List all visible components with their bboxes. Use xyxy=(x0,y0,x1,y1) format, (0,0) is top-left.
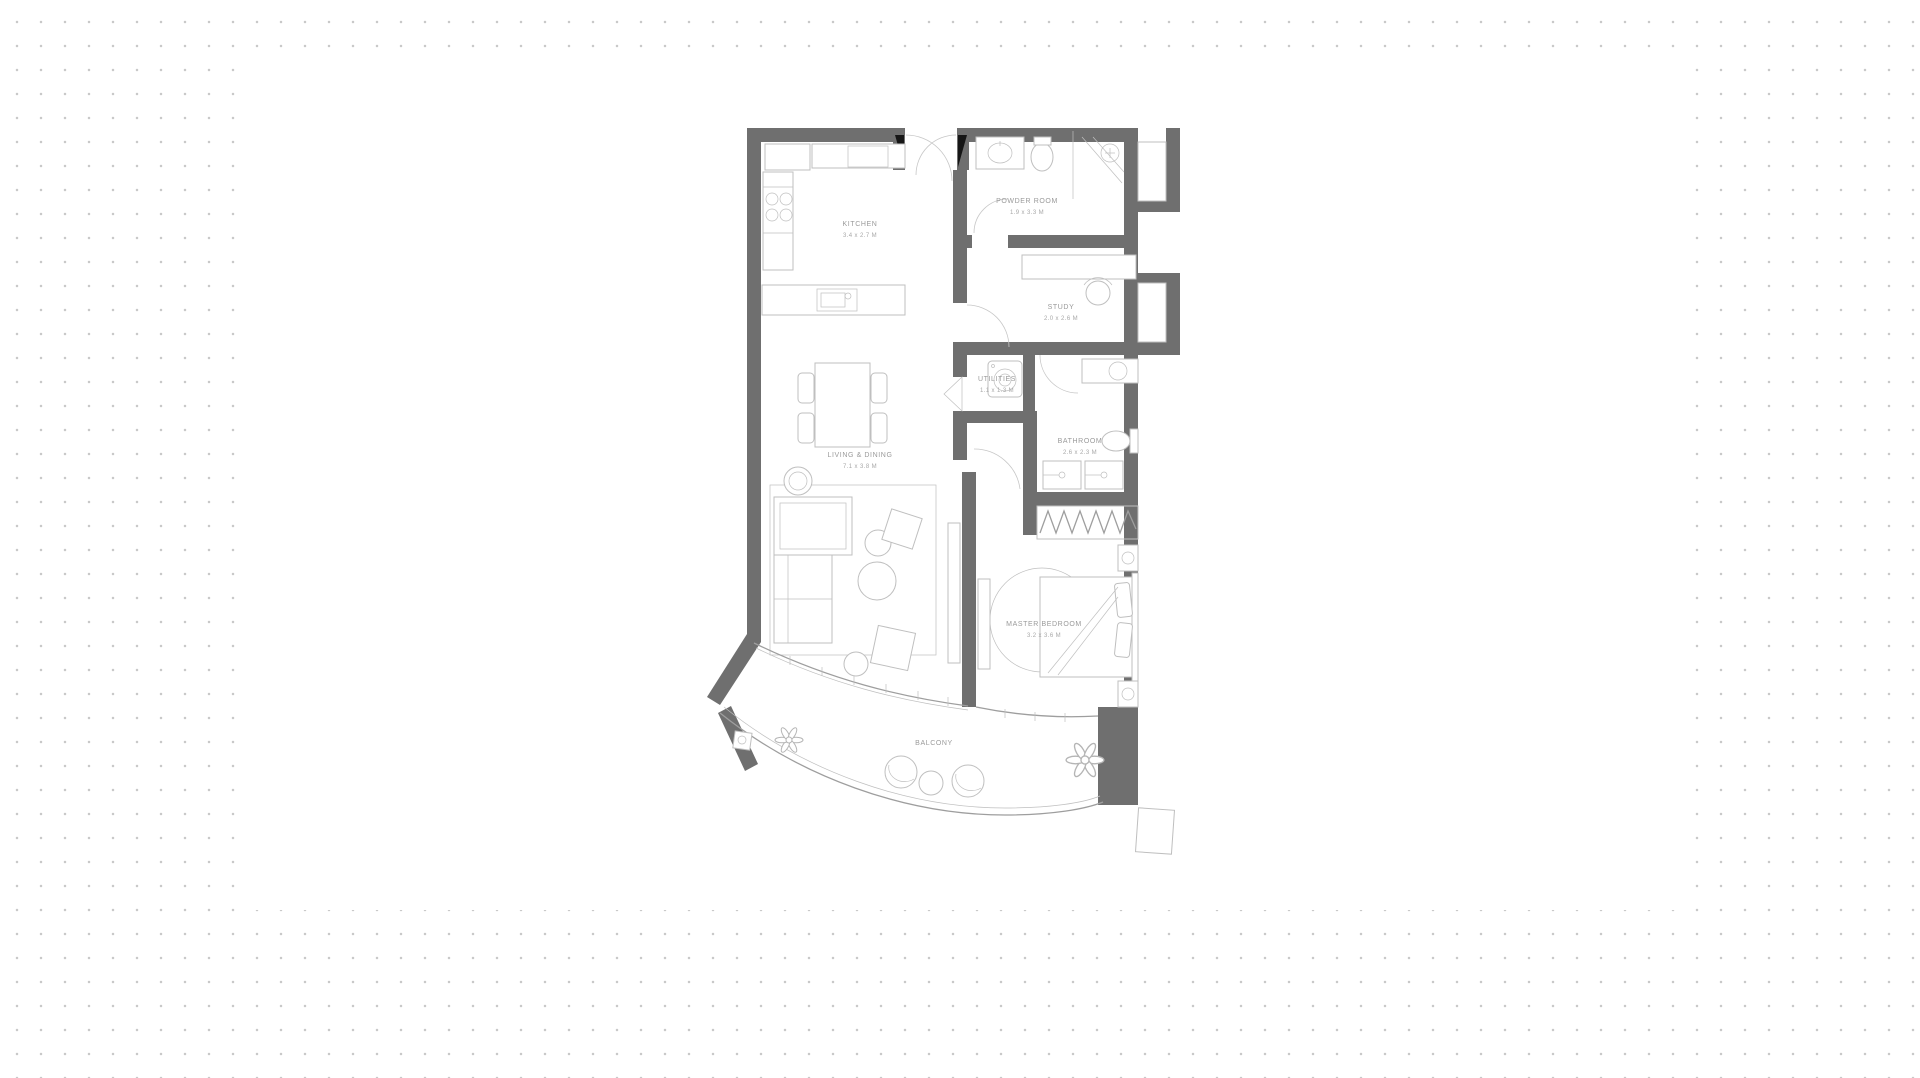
label-utilities: UTILITIES xyxy=(978,376,1016,383)
dims-study: 2.0 x 2.6 M xyxy=(1044,316,1078,322)
dims-living-dining: 7.1 x 3.8 M xyxy=(843,464,877,470)
dims-master-bedroom: 3.2 x 3.6 M xyxy=(1027,633,1061,639)
label-kitchen: KITCHEN xyxy=(843,221,878,228)
wardrobe xyxy=(1037,506,1138,539)
bathroom-fixtures xyxy=(1040,355,1138,489)
page-background: { "canvas": {"width": 1920, "height": 10… xyxy=(0,0,1920,1078)
dims-utilities: 1.1 x 1.3 M xyxy=(980,388,1014,394)
label-study: STUDY xyxy=(1048,304,1075,311)
label-bathroom: BATHROOM xyxy=(1058,438,1103,445)
label-balcony: BALCONY xyxy=(915,740,953,747)
label-master-bedroom: MASTER BEDROOM xyxy=(1006,621,1082,628)
powder-room-fixtures xyxy=(974,131,1124,233)
living-furniture xyxy=(770,467,960,676)
service-shafts xyxy=(1136,142,1175,854)
dims-powder-room: 1.9 x 3.3 M xyxy=(1010,210,1044,216)
kitchen-furniture xyxy=(762,144,905,315)
dining-set xyxy=(798,363,887,447)
balcony-furniture xyxy=(733,726,1104,797)
label-powder-room: POWDER ROOM xyxy=(996,198,1058,205)
dims-bathroom: 2.6 x 2.3 M xyxy=(1063,450,1097,456)
label-living-dining: LIVING & DINING xyxy=(827,452,892,459)
floor-plan-image: KITCHEN 3.4 x 2.7 M POWDER ROOM 1.9 x 3.… xyxy=(690,115,1180,860)
floor-plan-card: KITCHEN 3.4 x 2.7 M POWDER ROOM 1.9 x 3.… xyxy=(235,65,1690,910)
study-furniture xyxy=(967,255,1136,347)
dims-kitchen: 3.4 x 2.7 M xyxy=(843,233,877,239)
